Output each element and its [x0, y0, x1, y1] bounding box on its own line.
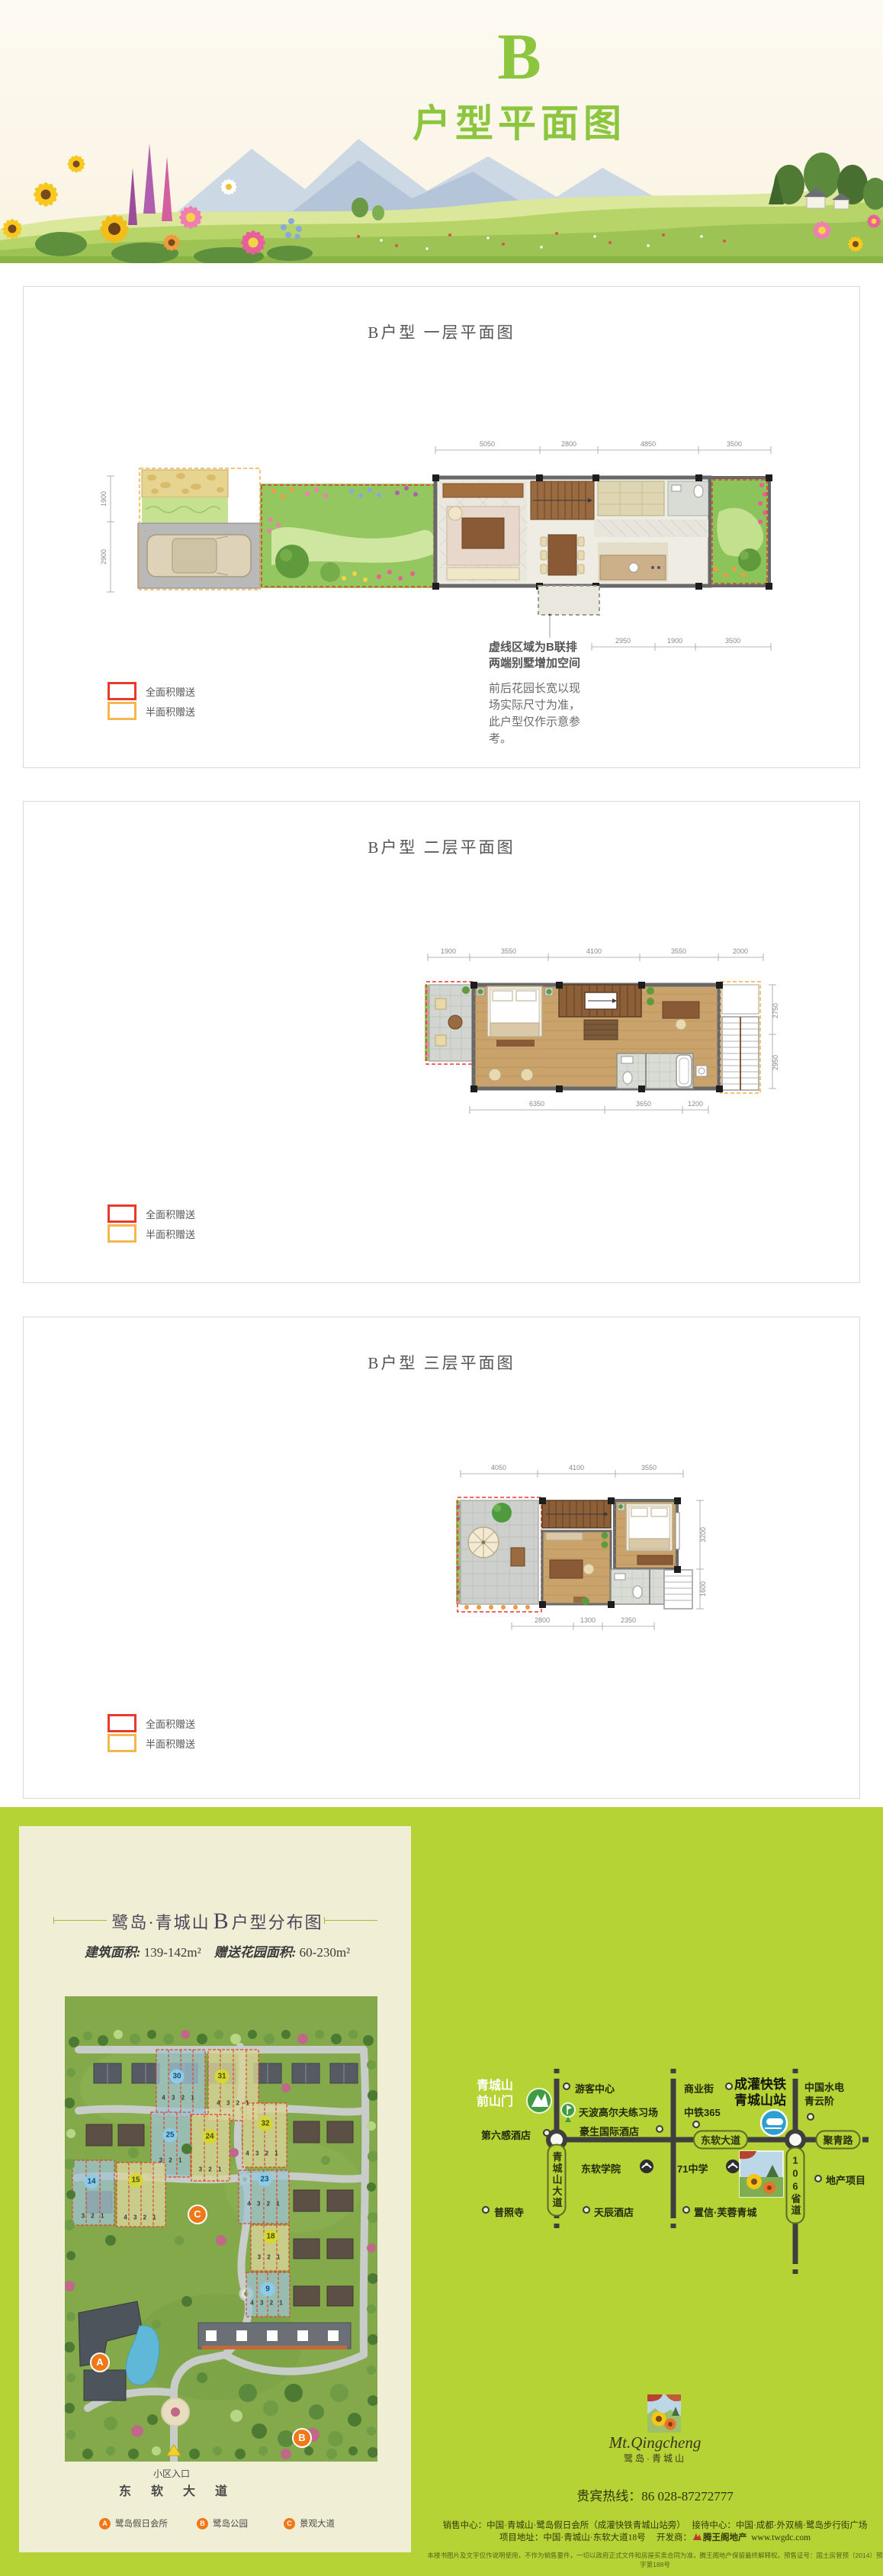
road-pill-juqing: 聚青路 — [815, 2131, 860, 2150]
block-badge-24: 24 — [203, 2130, 217, 2144]
block-badge-23: 23 — [258, 2172, 272, 2187]
floor1-note: 虚线区域为B联排 两端别墅增加空间 前后花园长宽以现场实际尺寸为准，此户型仅作示… — [489, 639, 580, 748]
brochure-page: B 户型平面图 — [0, 0, 883, 2576]
map-hotel-howard: 豪生国际酒店 — [580, 2124, 639, 2138]
panel-floor1-title: B户型 一层平面图 — [24, 320, 859, 343]
website: www.twgdc.com — [751, 2533, 811, 2542]
block-units-24: 3 2 1 — [199, 2166, 224, 2173]
legend-item-b: B 鹭岛公园 — [197, 2517, 248, 2529]
hotline: 贵宾热线：86 028-87272777 — [427, 2485, 883, 2504]
siteplan-title-suffix: 户型分布图 — [232, 1913, 323, 1932]
map-gate-line2: 前山门 — [477, 2094, 513, 2110]
legend-full-row: 全面积赠送 — [108, 1204, 195, 1223]
map-gate-line1: 青城山 — [477, 2078, 513, 2094]
svg-text:3500: 3500 — [727, 440, 742, 448]
svg-text:6350: 6350 — [529, 1100, 544, 1108]
svg-text:2900: 2900 — [100, 549, 108, 564]
college-icon — [640, 2160, 653, 2173]
marker-b: B — [292, 2428, 312, 2448]
golf-icon — [561, 2103, 575, 2122]
address-line-2: 项目地址：中国·青城山·东软大道18号 开发商：腾王阁地产 www.twgdc.… — [427, 2531, 883, 2543]
block-badge-25: 25 — [163, 2128, 178, 2143]
legend-b-label: 鹭岛公园 — [213, 2517, 248, 2529]
panel-floor2: B户型 二层平面图 1900 3550 4100 3550 2000 — [23, 801, 860, 1283]
area-value-1: 139-142m² — [144, 1945, 201, 1960]
panel-floor3-title: B户型 三层平面图 — [24, 1351, 859, 1374]
road-pill-qingchengshan: 青城山大道 — [547, 2144, 567, 2217]
legend-a-label: 鹭岛假日会所 — [115, 2517, 168, 2529]
legend-c-label: 景观大道 — [300, 2517, 335, 2529]
block-units-31: 4 3 2 1 — [217, 2100, 251, 2107]
mountain-icon — [527, 2089, 551, 2113]
map-hydro-line2: 青云阶 — [804, 2095, 844, 2108]
footer-logo-art — [647, 2394, 681, 2433]
map-college: 东软学院 — [581, 2161, 621, 2176]
legend-half-label: 半面积赠送 — [146, 704, 195, 719]
address-line-2-prefix: 项目地址：中国·青城山·东软大道18号 开发商： — [499, 2533, 692, 2542]
panel-floor2-title: B户型 二层平面图 — [24, 835, 859, 858]
svg-text:4050: 4050 — [491, 1464, 506, 1471]
svg-text:2750: 2750 — [772, 1003, 779, 1018]
block-badge-14: 14 — [85, 2175, 99, 2189]
legend-b-dot: B — [197, 2518, 208, 2529]
floor1-plan: 5050 2800 4850 3500 1900 2900 — [100, 439, 786, 668]
legend-full-label: 全面积赠送 — [146, 1716, 195, 1731]
siteplan-title: 鹭岛·青城山 B 户型分布图 — [72, 1909, 362, 1934]
floor1-note-line1: 虚线区域为B联排 — [489, 639, 580, 655]
legend-half-label: 半面积赠送 — [146, 1227, 195, 1241]
school-icon — [726, 2160, 740, 2173]
svg-text:3550: 3550 — [671, 947, 686, 955]
developer-logo-icon — [693, 2533, 702, 2540]
area-label-2: 赠送花园面积: — [214, 1945, 297, 1960]
svg-text:2350: 2350 — [621, 1616, 636, 1624]
logo-name: 鹭岛·青城山 — [427, 2452, 883, 2465]
header-illustration — [0, 114, 883, 263]
block-units-15: 4 3 2 1 — [124, 2214, 158, 2221]
block-units-25: 3 2 1 — [159, 2157, 185, 2164]
legend-full-label: 全面积赠送 — [146, 684, 195, 699]
legend-full-row: 全面积赠送 — [108, 1714, 195, 1732]
siteplan-map: 30 4 3 2 1 31 4 3 2 1 25 3 2 1 24 3 2 1 … — [65, 1996, 377, 2462]
block-badge-32: 32 — [258, 2117, 273, 2131]
block-badge-30: 30 — [170, 2069, 185, 2084]
svg-text:3500: 3500 — [725, 637, 740, 645]
svg-text:2000: 2000 — [733, 947, 748, 955]
legend-c-dot: C — [284, 2518, 295, 2529]
marker-a: A — [90, 2352, 110, 2372]
logo-script: Mt.Qingcheng — [427, 2433, 883, 2452]
block-units-30: 4 3 2 1 — [162, 2095, 196, 2102]
panel-floor3: B户型 三层平面图 4050 4100 3550 — [23, 1317, 860, 1799]
svg-text:1900: 1900 — [100, 491, 108, 507]
svg-text:1900: 1900 — [441, 947, 456, 955]
map-hotel-six: 第六感酒店 — [481, 2127, 531, 2142]
svg-text:2950: 2950 — [772, 1055, 779, 1070]
brand-name: 鹭岛·青城山 — [111, 1913, 210, 1932]
map-hotel-tianchen: 天辰酒店 — [594, 2205, 634, 2219]
svg-text:4850: 4850 — [641, 440, 656, 448]
svg-text:4100: 4100 — [569, 1464, 584, 1471]
entrance-label: 小区入口 — [114, 2467, 229, 2480]
project-art-icon — [740, 2151, 783, 2197]
map-golf: 天波高尔夫练习场 — [579, 2105, 658, 2119]
svg-text:3200: 3200 — [699, 1527, 707, 1542]
unit-letter: B — [78, 18, 883, 95]
map-roads — [431, 2028, 873, 2279]
legend-half-swatch — [108, 1224, 136, 1243]
svg-text:4100: 4100 — [586, 947, 602, 955]
block-units-9: 4 3 2 1 — [250, 2300, 284, 2307]
block-badge-9: 9 — [261, 2282, 275, 2297]
map-project: 地产项目 — [826, 2172, 865, 2187]
siteplan-illustration — [65, 1996, 377, 2462]
legend-a-dot: A — [99, 2518, 111, 2529]
road-label-dongruan: 东软大道 — [46, 2481, 320, 2499]
floor3-plan: 4050 4100 3550 — [454, 1462, 721, 1642]
svg-text:1600: 1600 — [699, 1581, 707, 1597]
header: B 户型平面图 — [0, 0, 883, 263]
legend-item-a: A 鹭岛假日会所 — [99, 2517, 168, 2529]
disclaimer: 本楼书图片及文字仅作说明使用，不作为销售要件，一切以政府正式文件和房屋买卖合同为… — [427, 2551, 883, 2569]
area-info: 建筑面积: 139-142m² 赠送花园面积: 60-230m² — [50, 1941, 385, 1960]
svg-text:3550: 3550 — [641, 1464, 657, 1471]
legend-full-swatch — [108, 1204, 136, 1223]
legend-half-row: 半面积赠送 — [108, 702, 195, 720]
panel-floor1: B户型 一层平面图 5050 2800 4850 3500 1900 2900 — [23, 286, 860, 768]
svg-text:1200: 1200 — [688, 1100, 703, 1108]
svg-text:1900: 1900 — [667, 637, 682, 645]
legend-full-row: 全面积赠送 — [108, 682, 195, 700]
legend-half-row: 半面积赠送 — [108, 1224, 195, 1243]
address-line-1: 销售中心：中国·青城山·鹭岛假日会所（成灌快铁青城山站旁） 接待中心：中国·成都… — [427, 2519, 883, 2531]
map-rail-line1: 成灌快铁 — [734, 2076, 786, 2092]
legend-half-row: 半面积赠送 — [108, 1734, 195, 1752]
road-pill-106: 106省道 — [786, 2147, 805, 2224]
train-icon — [761, 2110, 787, 2136]
map-rail-station: 成灌快铁 青城山站 — [734, 2076, 786, 2108]
legend-half-label: 半面积赠送 — [146, 1736, 195, 1751]
area-label-1: 建筑面积: — [85, 1945, 141, 1960]
legend-half-swatch — [108, 702, 136, 720]
floor1-note-line2: 两端别墅增加空间 — [489, 655, 580, 671]
legend-full-label: 全面积赠送 — [146, 1207, 195, 1221]
map-gate-label: 青城山 前山门 — [477, 2078, 513, 2110]
location-map: 青城山 前山门 游客中心 天波高尔夫练习场 豪生国际酒店 第六感酒店 东软学院 … — [431, 2028, 873, 2279]
legend-full-swatch — [108, 1714, 136, 1732]
block-badge-18: 18 — [264, 2230, 278, 2244]
developer-name: 腾王阁地产 — [703, 2533, 747, 2542]
map-rail-line2: 青城山站 — [734, 2092, 786, 2108]
map-hydro-line1: 中国水电 — [804, 2081, 844, 2095]
map-temple: 普照寺 — [494, 2205, 524, 2219]
block-units-18: 3 2 1 — [258, 2254, 283, 2261]
block-units-14: 3 2 1 — [82, 2213, 107, 2220]
map-school71: 71中学 — [677, 2161, 708, 2176]
svg-text:3550: 3550 — [501, 947, 516, 955]
map-zhixin: 置信·芙蓉青城 — [694, 2205, 756, 2219]
unit-letter-small: B — [214, 1909, 229, 1934]
floor1-note-body: 前后花园长宽以现场实际尺寸为准，此户型仅作示意参考。 — [489, 680, 580, 748]
block-badge-15: 15 — [129, 2173, 143, 2188]
marker-c: C — [188, 2205, 207, 2224]
svg-text:2950: 2950 — [615, 637, 631, 645]
map-zhongtie: 中铁365 — [684, 2105, 721, 2119]
legend-full-swatch — [108, 682, 136, 700]
map-biz-street: 商业街 — [684, 2081, 714, 2095]
block-units-23: 4 3 2 1 — [247, 2201, 281, 2208]
map-visitor-center: 游客中心 — [575, 2081, 615, 2095]
area-value-2: 60-230m² — [300, 1945, 350, 1960]
svg-text:2800: 2800 — [535, 1616, 550, 1624]
svg-text:1300: 1300 — [580, 1616, 596, 1624]
svg-text:2800: 2800 — [561, 440, 576, 448]
block-badge-31: 31 — [215, 2069, 230, 2084]
block-units-32: 4 3 2 1 — [246, 2150, 280, 2157]
svg-text:5050: 5050 — [480, 440, 495, 448]
floor2-plan: 1900 3550 4100 3550 2000 — [420, 947, 786, 1130]
legend-item-c: C 景观大道 — [284, 2517, 335, 2529]
map-hydro: 中国水电 青云阶 — [804, 2081, 844, 2108]
legend-half-swatch — [108, 1734, 136, 1752]
svg-text:3650: 3650 — [636, 1100, 651, 1108]
road-pill-dongruan: 东软大道 — [693, 2131, 748, 2150]
